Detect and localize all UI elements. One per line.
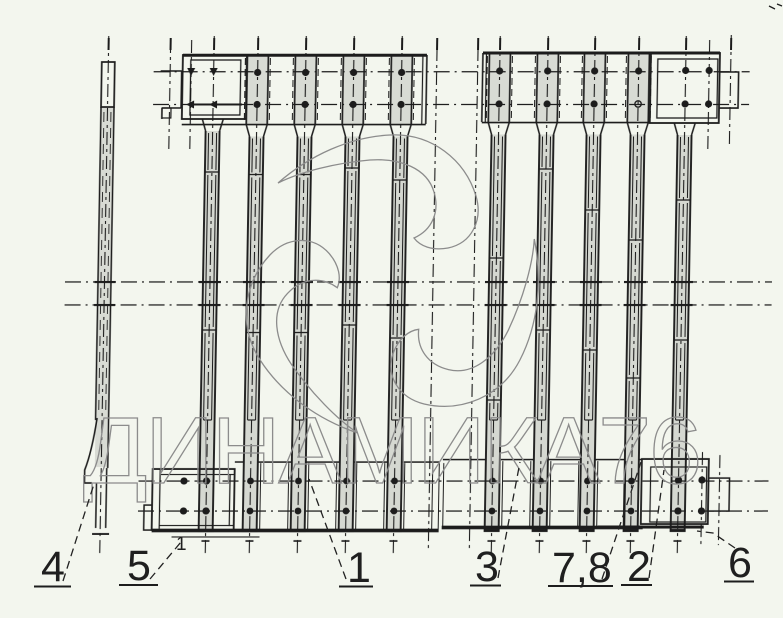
svg-text:4: 4 xyxy=(41,543,65,591)
svg-text:2: 2 xyxy=(627,543,651,591)
svg-text:1: 1 xyxy=(176,534,187,555)
svg-text:7,8: 7,8 xyxy=(552,544,612,592)
svg-text:5: 5 xyxy=(127,542,151,590)
svg-text:1: 1 xyxy=(347,544,371,592)
svg-text:ДИНАМИКА76: ДИНАМИКА76 xyxy=(83,398,702,504)
svg-text:3: 3 xyxy=(475,543,499,591)
